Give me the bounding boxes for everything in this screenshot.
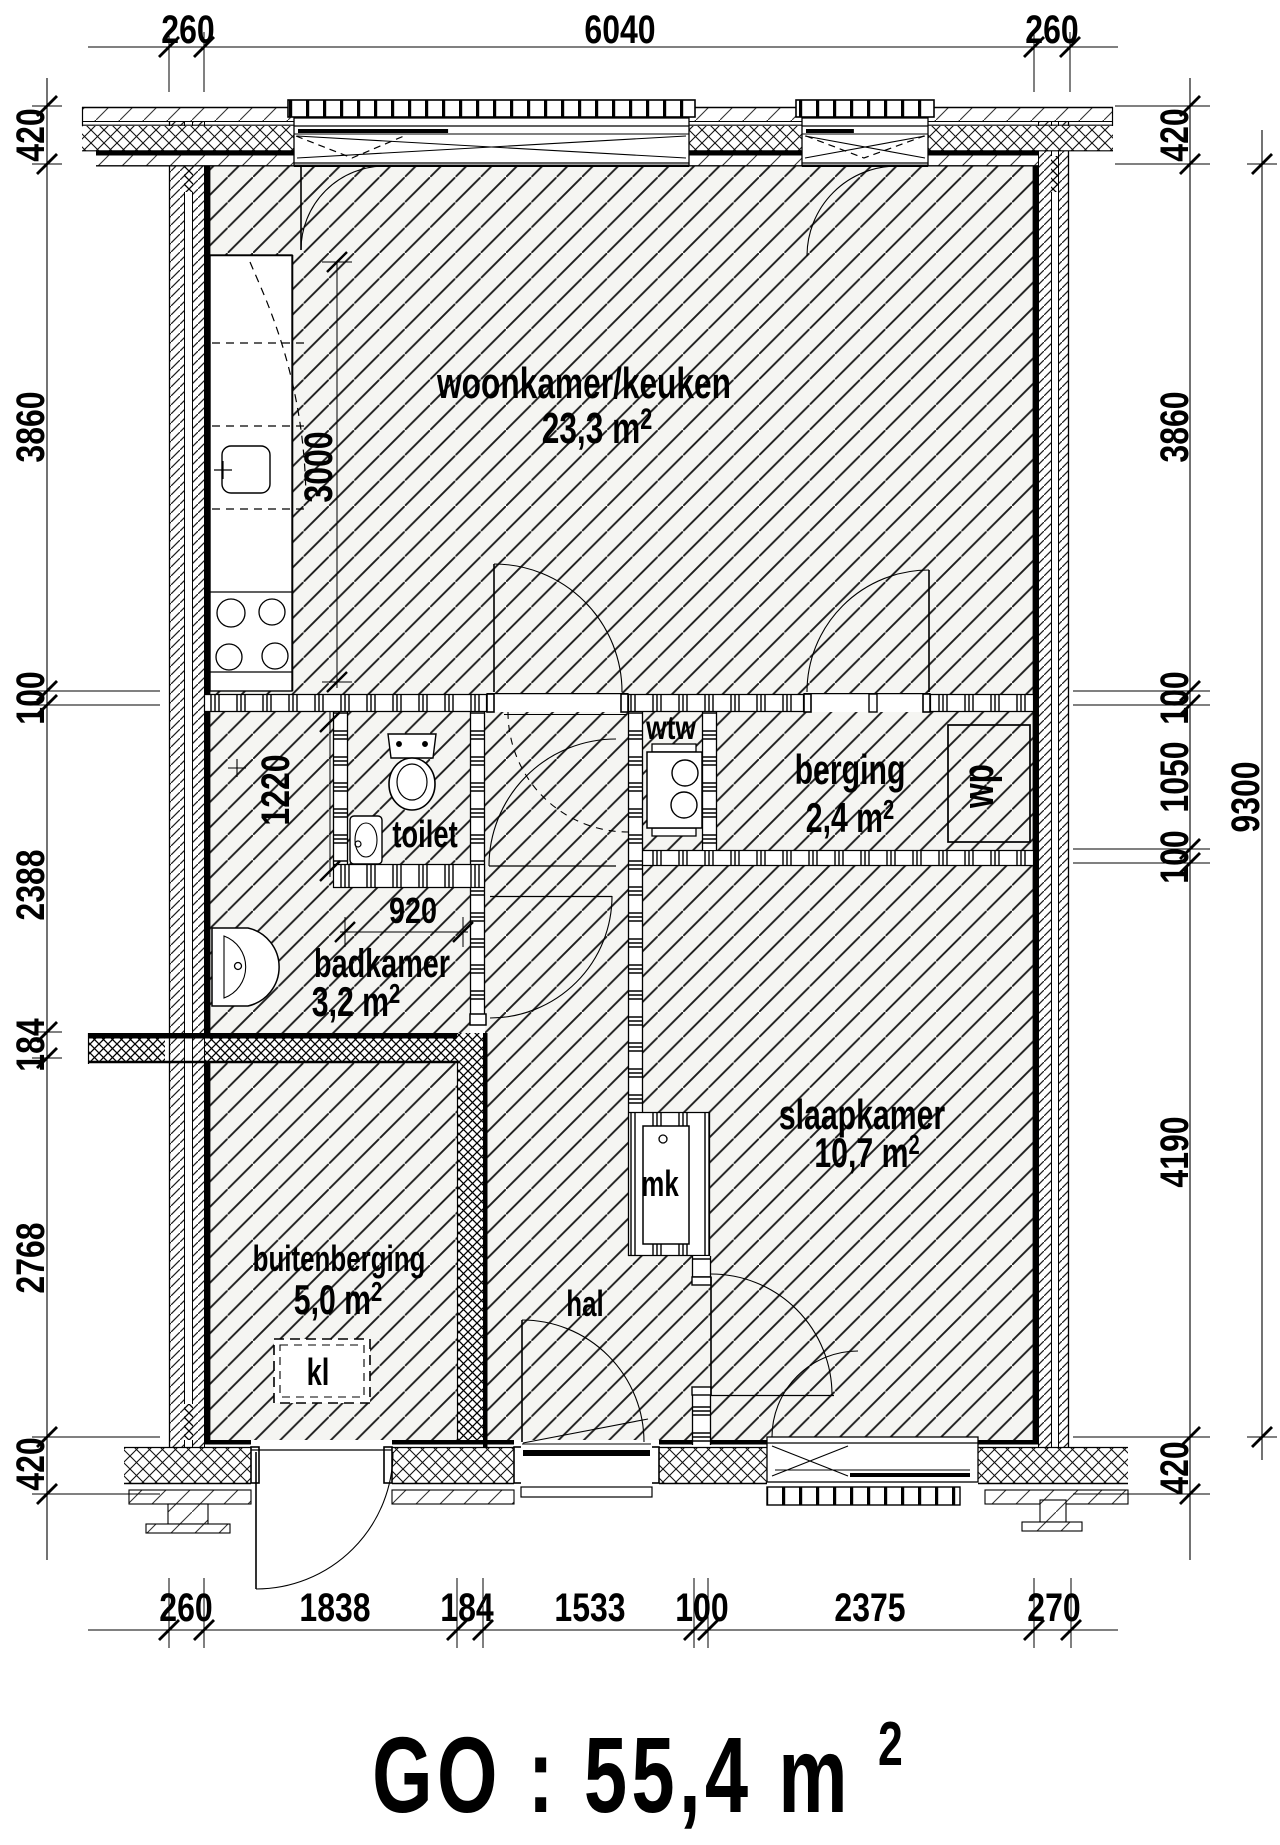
svg-text:wtw: wtw [645, 710, 696, 746]
svg-text:2375: 2375 [834, 1585, 905, 1630]
svg-text:23,3 m2: 23,3 m2 [542, 401, 653, 453]
svg-text:1220: 1220 [253, 754, 298, 825]
svg-text:1533: 1533 [554, 1585, 625, 1630]
svg-text:kl: kl [307, 1352, 330, 1394]
svg-text:100: 100 [8, 671, 53, 724]
svg-text:10,7 m2: 10,7 m2 [814, 1129, 919, 1176]
svg-text:184: 184 [440, 1585, 493, 1630]
svg-text:3,2 m2: 3,2 m2 [312, 978, 401, 1025]
svg-text:6040: 6040 [584, 7, 655, 52]
svg-text:5,0 m2: 5,0 m2 [294, 1276, 383, 1323]
svg-text:mk: mk [641, 1164, 679, 1204]
svg-text:260: 260 [159, 1585, 212, 1630]
svg-text:2768: 2768 [8, 1222, 53, 1293]
svg-text:berging: berging [795, 746, 906, 793]
svg-text:100: 100 [675, 1585, 728, 1630]
svg-text:hal: hal [566, 1284, 603, 1324]
svg-text:GO : 55,4 m: GO : 55,4 m [372, 1714, 852, 1835]
svg-text:420: 420 [1152, 1441, 1197, 1494]
svg-text:100: 100 [1152, 671, 1197, 724]
svg-text:toilet: toilet [392, 814, 457, 856]
svg-text:2: 2 [878, 1710, 903, 1779]
svg-text:buitenberging: buitenberging [253, 1239, 426, 1279]
svg-text:2388: 2388 [8, 849, 53, 920]
svg-text:270: 270 [1027, 1585, 1080, 1630]
svg-text:920: 920 [389, 890, 437, 931]
svg-text:2,4 m2: 2,4 m2 [806, 794, 895, 841]
svg-text:3860: 3860 [8, 391, 53, 462]
svg-text:9300: 9300 [1223, 761, 1268, 832]
svg-text:wp: wp [954, 764, 1003, 809]
svg-text:3860: 3860 [1152, 391, 1197, 462]
svg-text:420: 420 [8, 1437, 53, 1490]
svg-text:184: 184 [8, 1018, 53, 1071]
svg-text:420: 420 [8, 108, 53, 161]
svg-text:woonkamer/keuken: woonkamer/keuken [436, 359, 731, 408]
svg-text:420: 420 [1152, 108, 1197, 161]
svg-text:260: 260 [161, 7, 214, 52]
svg-text:1050: 1050 [1152, 741, 1197, 812]
svg-text:260: 260 [1025, 7, 1078, 52]
svg-text:4190: 4190 [1152, 1116, 1197, 1187]
svg-text:100: 100 [1152, 830, 1197, 883]
svg-text:3000: 3000 [296, 431, 341, 502]
svg-text:1838: 1838 [299, 1585, 370, 1630]
